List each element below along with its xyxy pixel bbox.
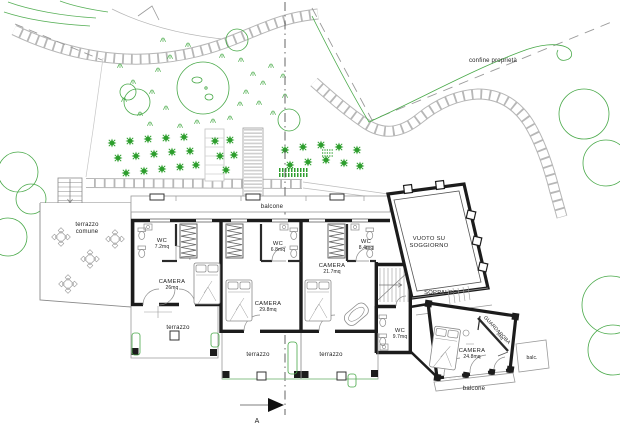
balcone-bottom-label: balcone [463,386,486,392]
stone-path-upper-left [14,14,318,59]
stone-walk-terrace [86,183,302,184]
wc2-area: 6.8mq [271,247,286,253]
site-vegetation-contours [4,1,232,40]
camera4-area: 24.8mq [463,354,480,360]
terrace-left [131,306,219,358]
terrazzo-right-label: terrazzo [319,352,343,358]
vuoto-label-1: VUOTO SU [413,236,446,242]
wc4-area: 9.7mq [393,334,408,340]
terrazzo-comune-label-2: comune [76,229,99,235]
camera3-area: 21.7mq [323,269,340,275]
site-stairs [58,178,82,205]
site-plan-drawing: confine proprietà [0,0,620,429]
wc1-area: 7.2mq [155,244,170,250]
property-boundary [15,8,614,122]
balc-small-label: balc. [526,355,537,361]
soppalco-label: SOPPALCO [424,290,458,296]
terrace-right [301,333,378,387]
terrazzo-left-label: terrazzo [166,325,190,331]
confine-proprieta-label: confine proprietà [469,58,518,64]
wc3-area: 8.4mq [359,245,374,251]
camera1-area: 26mq [166,285,179,291]
terrazzo-comune-label-1: terrazzo [75,222,99,228]
terrazzo-mid-label: terrazzo [246,352,270,358]
camera2-area: 29.8mq [259,307,276,313]
balcone-top-label: balcone [261,204,284,210]
vuoto-label-2: SOGGIORNO [409,243,448,249]
floor-plan-sheet: confine proprietà [0,0,620,429]
section-a-label: A [255,418,260,425]
orchard-group-right [279,141,365,176]
